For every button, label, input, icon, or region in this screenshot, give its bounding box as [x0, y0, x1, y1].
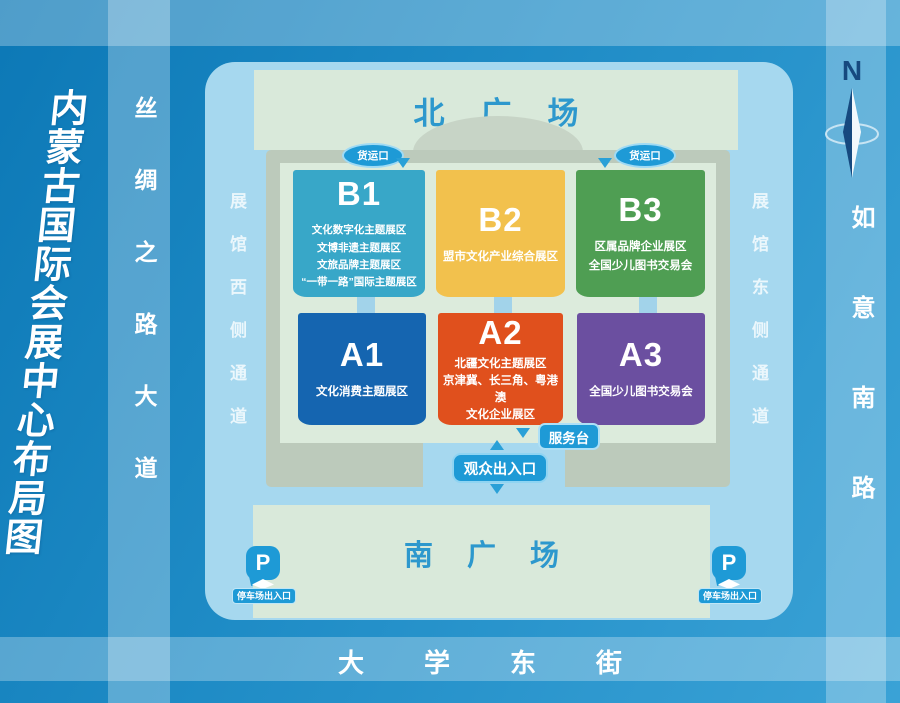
arrow-down-icon [396, 158, 410, 168]
visitor-entrance-label: 观众出入口 [452, 453, 548, 483]
freight-entrance-right: 货运口 [614, 143, 676, 168]
hall-A1: A1 文化消费主题展区 [298, 313, 426, 425]
hall-A3: A3 全国少儿图书交易会 [577, 313, 705, 425]
freight-entrance-left: 货运口 [342, 143, 404, 168]
road-name-silk-road-avenue: 丝绸之路大道 [127, 96, 161, 528]
compass-north-label: N [824, 56, 880, 86]
south-plaza-label: 南广场 [253, 505, 710, 600]
arrow-down-icon [598, 158, 612, 168]
hall-B2: B2 盟市文化产业综合展区 [436, 170, 565, 297]
arrow-up-icon [490, 440, 504, 450]
map-title: 内蒙古国际会展中心布局图 [0, 88, 86, 556]
hall-id: A1 [340, 336, 384, 374]
hall-id: B3 [618, 191, 662, 229]
hall-A2: A2 北疆文化主题展区京津冀、长三角、粤港澳文化企业展区 [438, 313, 563, 425]
hall-id: A3 [619, 336, 663, 374]
hall-description: 文化消费主题展区 [316, 383, 408, 402]
road-name-university-east-street: 大学东街 [338, 643, 682, 680]
hall-id: A2 [478, 314, 522, 352]
hall-description: 文化数字化主题展区文博非遗主题展区文旅品牌主题展区“一带一路”国际主题展区 [301, 222, 417, 291]
hall-id: B1 [337, 175, 381, 213]
hall-description: 区属品牌企业展区全国少儿图书交易会 [589, 238, 693, 276]
exhibition-center-map: 内蒙古国际会展中心布局图 丝绸之路大道 如意南路 大学东街 N 北广场 展馆西侧… [0, 0, 900, 703]
service-desk-label: 服务台 [538, 423, 600, 450]
hall-B1: B1 文化数字化主题展区文博非遗主题展区文旅品牌主题展区“一带一路”国际主题展区 [293, 170, 425, 297]
arrow-down-icon [516, 428, 530, 438]
hall-description: 盟市文化产业综合展区 [443, 248, 558, 267]
parking-letter: P [712, 546, 746, 580]
parking-letter: P [246, 546, 280, 580]
hall-description: 北疆文化主题展区京津冀、长三角、粤港澳文化企业展区 [438, 356, 563, 425]
corridor-east-label: 展馆东侧通道 [746, 192, 771, 450]
compass-needle-icon [824, 86, 880, 182]
parking-icon: P [712, 546, 746, 580]
hall-id: B2 [478, 201, 522, 239]
parking-icon: P [246, 546, 280, 580]
compass: N [824, 56, 880, 196]
arrow-down-icon [490, 484, 504, 494]
hall-description: 全国少儿图书交易会 [589, 383, 693, 402]
road-name-ruyi-south-road: 如意南路 [843, 205, 878, 565]
corridor-west-label: 展馆西侧通道 [224, 192, 249, 450]
hall-B3: B3 区属品牌企业展区全国少儿图书交易会 [576, 170, 705, 297]
parking-entrance-label: 停车场出入口 [698, 588, 762, 604]
parking-entrance-label: 停车场出入口 [232, 588, 296, 604]
